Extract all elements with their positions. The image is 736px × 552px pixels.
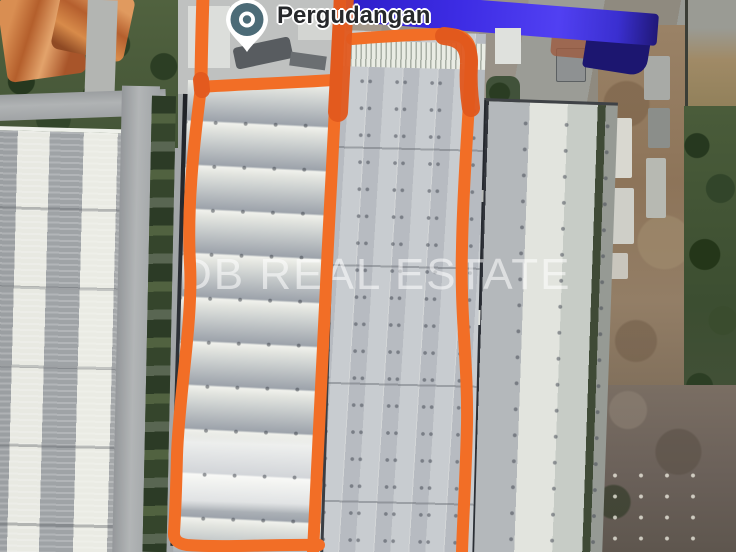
parcel-outlines: [174, 0, 471, 552]
satellite-map[interactable]: DB REAL ESTATE Pergudangan: [0, 0, 736, 552]
pin-label[interactable]: Pergudangan: [277, 2, 430, 30]
left-parcel-outline: [174, 80, 333, 546]
place-pin-icon[interactable]: [226, 0, 268, 52]
parcel-outline-annotation: [0, 0, 736, 552]
right-parcel-outline: [352, 34, 471, 552]
